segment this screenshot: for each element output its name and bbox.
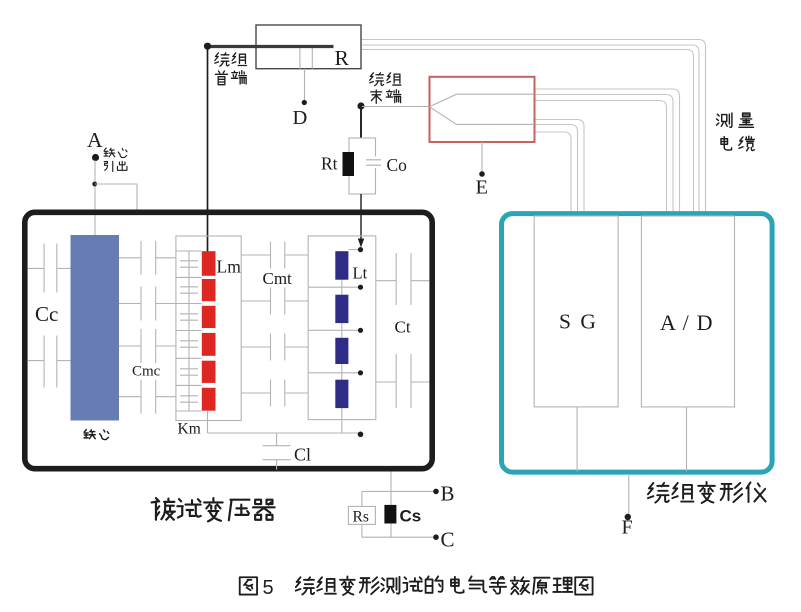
svg-text:S G: S G	[559, 310, 598, 334]
svg-text:C: C	[441, 528, 455, 552]
svg-text:Km: Km	[178, 421, 201, 438]
svg-text:Rt: Rt	[321, 154, 338, 174]
svg-text:D: D	[293, 107, 308, 129]
svg-text:A / D: A / D	[660, 310, 714, 335]
svg-text:E: E	[476, 177, 489, 199]
svg-text:Lt: Lt	[353, 264, 368, 283]
svg-text:Cs: Cs	[400, 507, 422, 526]
svg-text:Lm: Lm	[217, 257, 242, 277]
svg-text:R: R	[335, 46, 350, 70]
svg-text:Cmt: Cmt	[263, 269, 293, 288]
svg-text:Rs: Rs	[353, 509, 369, 526]
svg-text:Cmc: Cmc	[132, 364, 161, 380]
svg-text:F: F	[622, 517, 633, 539]
svg-text:Cc: Cc	[35, 302, 58, 326]
svg-text:A: A	[87, 128, 103, 152]
svg-text:Cl: Cl	[294, 445, 311, 465]
svg-text:Ct: Ct	[395, 318, 411, 337]
svg-text:Co: Co	[387, 155, 408, 175]
svg-text:B: B	[441, 482, 455, 506]
svg-text:5: 5	[263, 577, 274, 599]
